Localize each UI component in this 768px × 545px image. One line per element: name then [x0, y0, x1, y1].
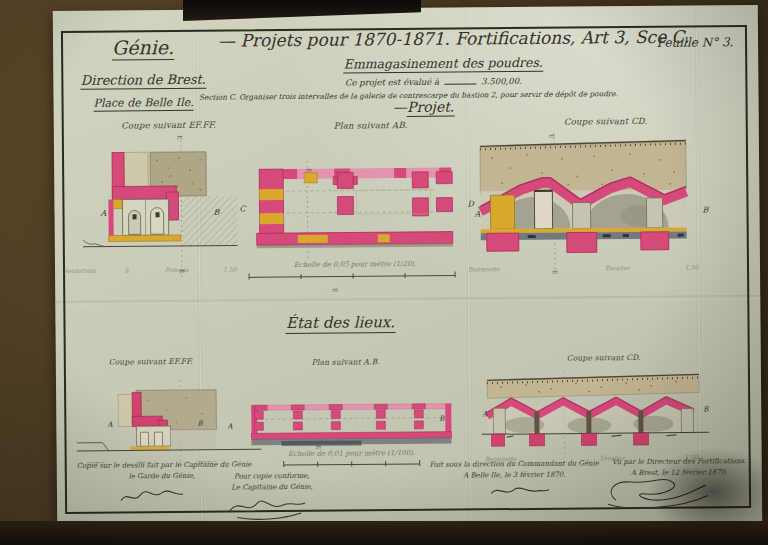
annotation: 1,50: [223, 265, 236, 272]
etat-scale-bar: [282, 459, 422, 469]
section-letter: B: [197, 420, 202, 428]
annotation: 1,50: [685, 263, 698, 270]
label-plan-ab-etat: Plan suivant A.B.: [271, 357, 421, 367]
flourish-dash: —: [393, 99, 407, 115]
flourish-dash: —: [218, 30, 235, 50]
etat-heading: État des lieux.: [270, 312, 410, 334]
annotation: à: [125, 266, 129, 273]
cut-mark: E: [179, 269, 186, 273]
cut-mark: E: [552, 270, 559, 274]
signature: [227, 495, 312, 524]
section-letter: C: [239, 204, 245, 213]
caption-fait: Fait sous la direction du Commandant du …: [427, 458, 602, 481]
section-letter: B: [703, 405, 708, 413]
corner-shadow: [648, 447, 768, 537]
cut-mark: E: [177, 135, 184, 139]
projet-heading: —Projet.: [374, 96, 474, 117]
label-plan-ab-projet: Plan suivant AB.: [296, 120, 446, 131]
section-letter: B: [702, 205, 708, 214]
cut-mark: E: [306, 168, 313, 172]
annotation: Souterrain: [63, 267, 96, 274]
signature: [117, 486, 187, 511]
label-coupe-cd-projet: Coupe suivant CD.: [531, 116, 681, 127]
header-genie: Génie.: [73, 37, 213, 61]
projet-scale-bar: [247, 270, 457, 282]
label-coupe-cd-etat: Coupe suivant CD.: [529, 353, 679, 363]
drawing-plan-ab-etat: [239, 395, 469, 455]
section-letter: B: [439, 415, 444, 423]
section-letter: A: [100, 209, 106, 218]
section-letter: D: [467, 199, 474, 208]
annotation: Escalier: [605, 264, 630, 271]
etat-scale-label: Echelle de 0,01 pour mètre (1/100).: [272, 449, 432, 458]
cut-mark: E: [315, 445, 322, 449]
label-coupe-ef-etat: Coupe suivant EF.FF.: [76, 357, 226, 367]
drawing-plan-ab-projet: [234, 159, 475, 261]
caption-conforme: Pour copie conforme, Le Capitaine du Gén…: [207, 471, 337, 494]
label-coupe-ef-projet: Coupe suivant EF.FF.: [94, 119, 244, 130]
section-letter: A: [475, 209, 481, 218]
section-letter: A: [107, 421, 112, 429]
section-letter: A: [482, 410, 487, 418]
section-letter: B: [213, 208, 219, 217]
sheet-title: — Projets pour 1870-1871. Fortifications…: [218, 27, 628, 51]
signature: [487, 483, 552, 504]
archive-photo: Génie. Direction de Brest. Place de Bell…: [0, 0, 768, 545]
sheet-number: Feuille N° 3.: [635, 31, 755, 51]
cut-mark: E: [332, 288, 339, 292]
drawing-coupe-cd-projet: [472, 131, 703, 273]
annotation: Banquette: [468, 265, 500, 272]
drawing-coupe-ef-etat: [76, 379, 262, 469]
cut-mark: E: [549, 134, 556, 138]
section-letter: A: [227, 423, 232, 431]
org-title: Génie.: [112, 37, 174, 60]
